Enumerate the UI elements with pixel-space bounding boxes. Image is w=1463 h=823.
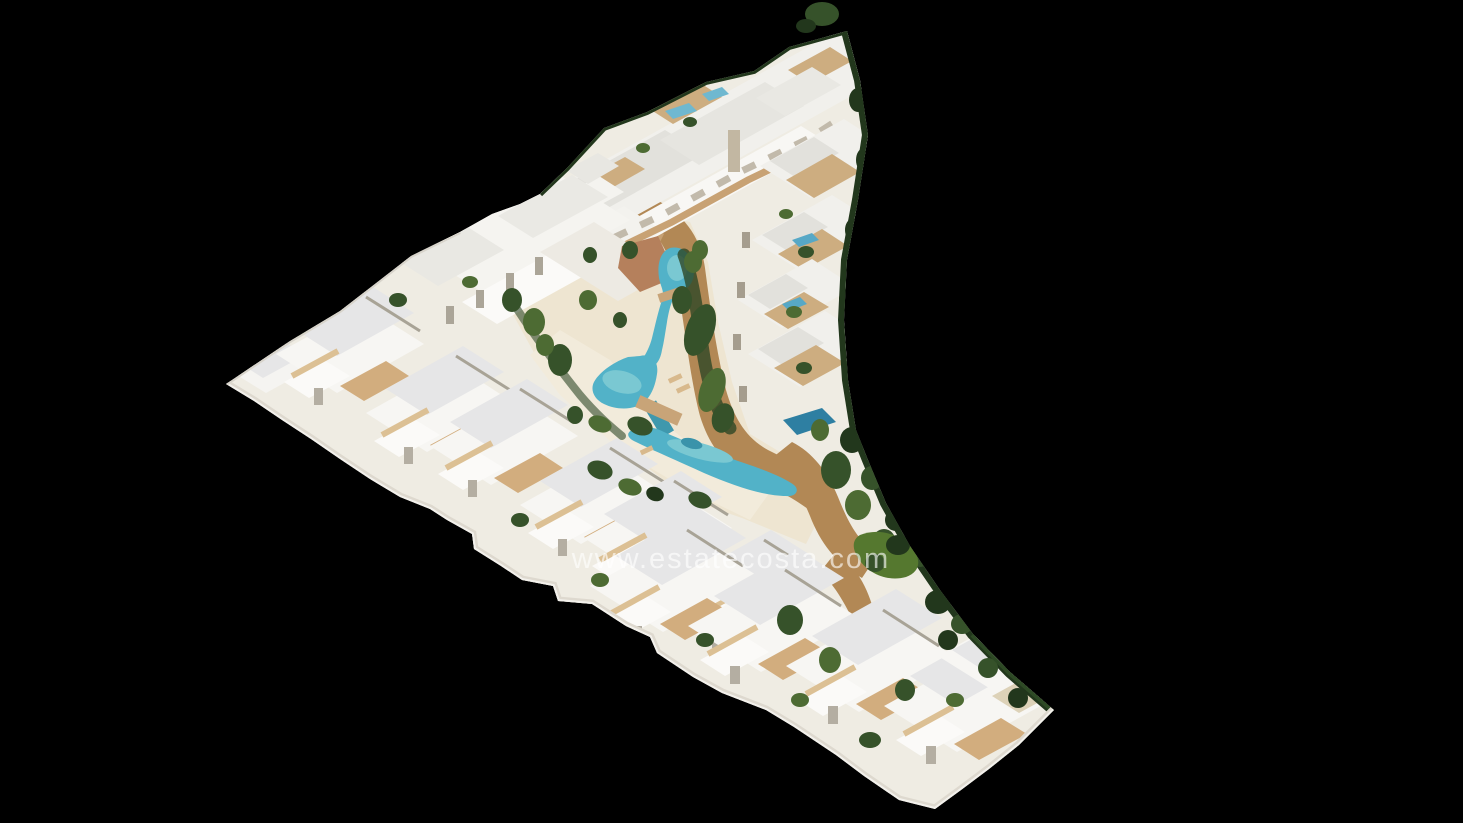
svg-text:www.estatecosta.com: www.estatecosta.com [571,543,890,575]
